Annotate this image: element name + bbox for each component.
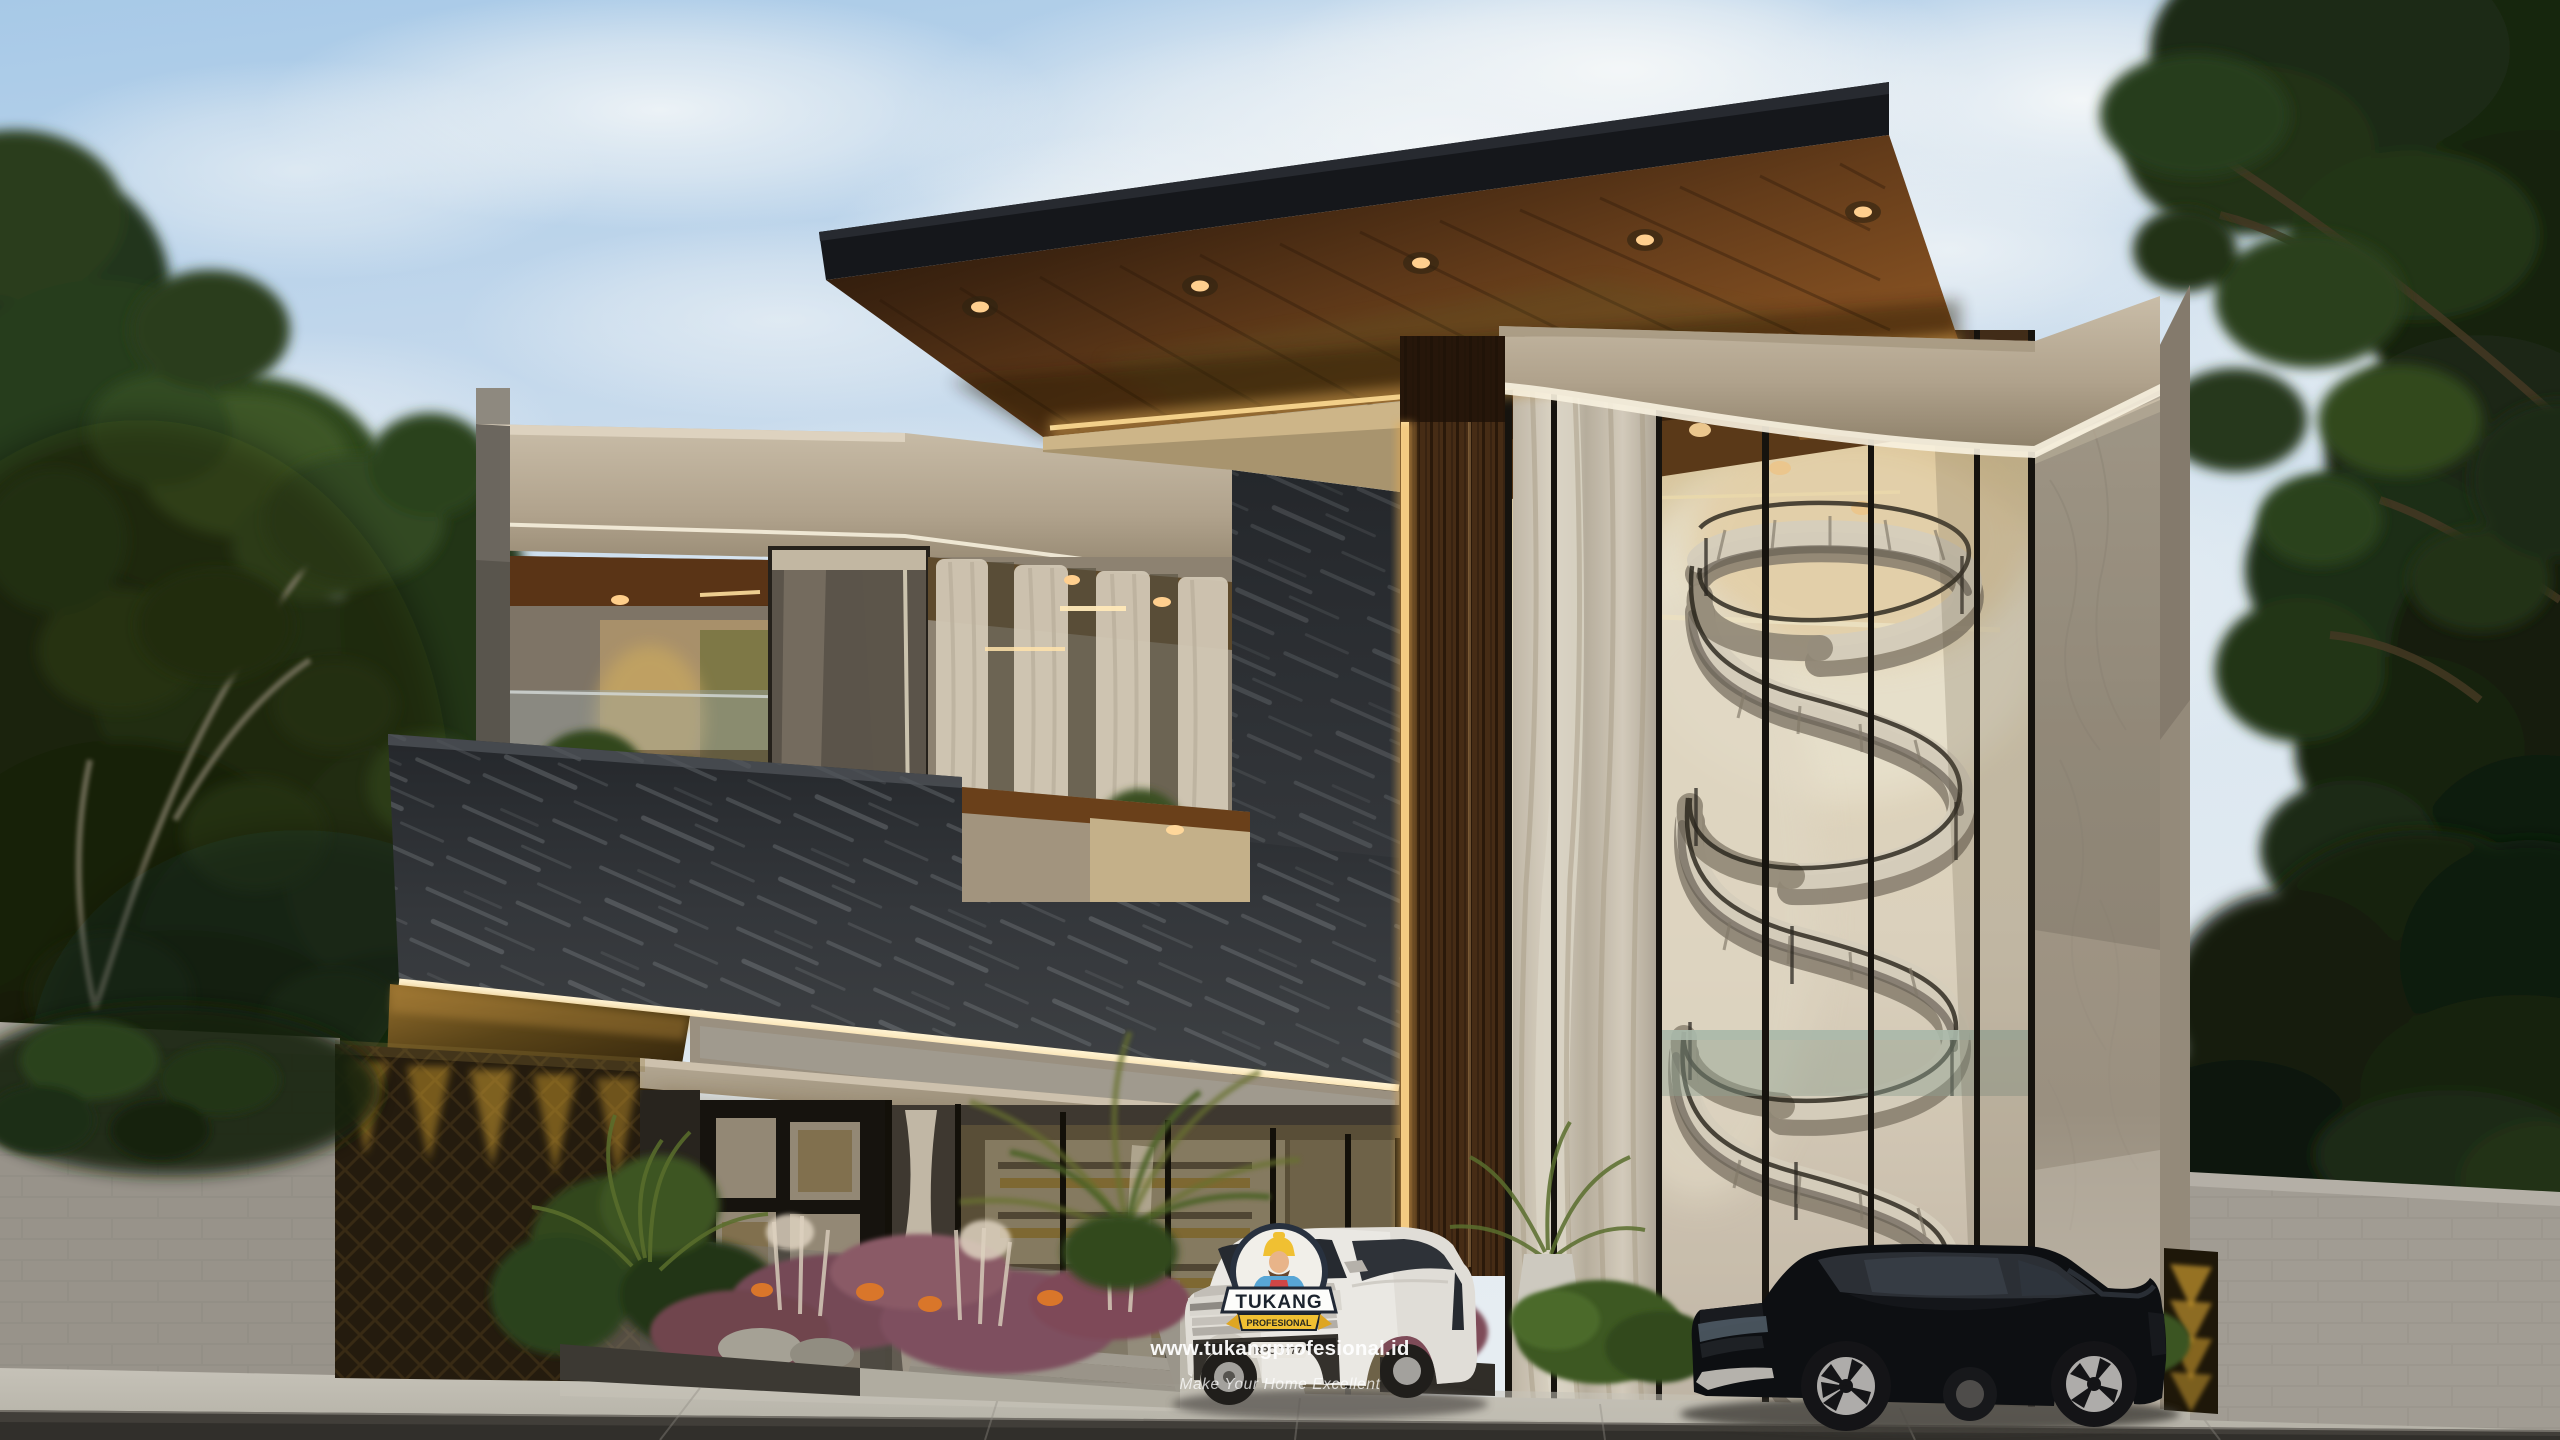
svg-text:Make Your Home Excellent: Make Your Home Excellent [1179,1376,1380,1393]
svg-text:TUKANG: TUKANG [1235,1292,1322,1313]
svg-text:www.tukangprofesional.id: www.tukangprofesional.id [1149,1337,1409,1360]
svg-text:PROFESIONAL: PROFESIONAL [1246,1318,1312,1328]
